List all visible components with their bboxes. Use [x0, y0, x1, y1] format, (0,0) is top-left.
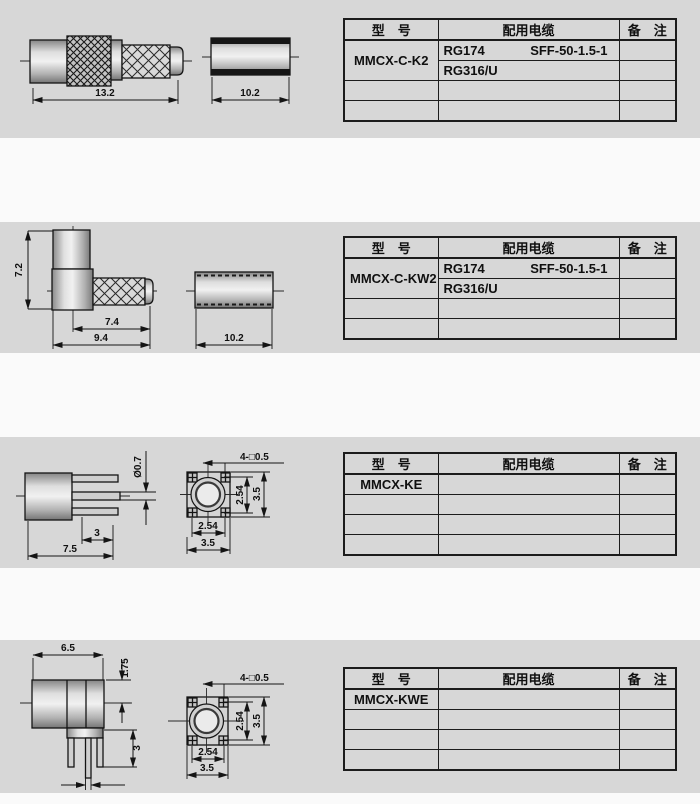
model-cell: MMCX-C-KW2	[344, 258, 438, 299]
empty-cell	[438, 710, 619, 730]
cable-cell: RG316/U	[438, 61, 619, 81]
empty-cell	[619, 495, 676, 515]
empty-cell	[344, 710, 438, 730]
dim-flange-width: 3.5	[200, 763, 214, 774]
drawing-mmcx-kwe: 6.5 1.75 3 4-□0.5 2.54 3.5	[0, 640, 340, 793]
empty-cell	[619, 689, 676, 710]
col-header-cable: 配用电缆	[438, 19, 619, 40]
dim-flange-height: 3.5	[252, 487, 263, 501]
empty-cell	[619, 299, 676, 319]
ferrule-side-view	[202, 38, 299, 75]
dim-body-length: 7.5	[63, 544, 77, 555]
col-header-model: 型 号	[344, 19, 438, 40]
pcb-connector-side-view	[16, 473, 130, 520]
dim-pin-pitch-horizontal: 2.54	[198, 747, 218, 758]
connector-side-view	[20, 36, 192, 86]
dim-flange-width: 3.5	[201, 538, 215, 549]
col-header-cable: 配用电缆	[438, 237, 619, 258]
empty-cell	[438, 515, 619, 535]
spec-table-mmcx-c-kw2: 型 号 配用电缆 备 注 MMCX-C-KW2 RG174 SFF-50-1.5…	[343, 236, 677, 340]
remark-cell	[619, 258, 676, 279]
model-cell: MMCX-C-K2	[344, 40, 438, 81]
empty-cell	[344, 495, 438, 515]
dim-pin-pitch-vertical: 2.54	[235, 711, 246, 731]
dim-flange-height: 3.5	[252, 714, 263, 728]
section-mmcx-kwe: 6.5 1.75 3 4-□0.5 2.54 3.5	[0, 640, 700, 793]
flange-front-view	[180, 464, 238, 526]
cable-name: RG174	[444, 261, 485, 276]
empty-cell	[438, 299, 619, 319]
cable-name: SFF-50-1.5-1	[530, 261, 607, 276]
cable-name: SFF-50-1.5-1	[530, 43, 607, 58]
drawing-mmcx-ke: Ø0.7 3 7.5 4-□0.5 2.54 3.5 2.54	[0, 437, 340, 568]
cable-name: RG174	[444, 43, 485, 58]
cable-cell: RG174 SFF-50-1.5-1	[438, 40, 619, 61]
empty-cell	[619, 515, 676, 535]
remark-cell	[619, 40, 676, 61]
empty-cell	[344, 730, 438, 750]
flange-front-view	[168, 688, 244, 753]
empty-cell	[344, 750, 438, 771]
empty-cell	[438, 750, 619, 771]
col-header-cable: 配用电缆	[438, 453, 619, 474]
ferrule-side-view	[186, 272, 284, 308]
dim-horizontal-length: 7.4	[105, 317, 119, 328]
col-header-model: 型 号	[344, 668, 438, 689]
empty-cell	[438, 474, 619, 495]
empty-cell	[438, 689, 619, 710]
empty-cell	[344, 101, 438, 122]
model-cell: MMCX-KE	[344, 474, 438, 495]
dim-ferrule-length: 10.2	[224, 333, 244, 344]
empty-cell	[438, 495, 619, 515]
spec-table-mmcx-kwe: 型 号 配用电缆 备 注 MMCX-KWE	[343, 667, 677, 771]
datasheet-page: { "colors": { "panel_bg": "#d7d7d7", "ga…	[0, 0, 700, 804]
col-header-remark: 备 注	[619, 19, 676, 40]
empty-cell	[619, 730, 676, 750]
spec-table-mmcx-c-k2: 型 号 配用电缆 备 注 MMCX-C-K2 RG174 SFF-50-1.5-…	[343, 18, 677, 122]
dim-ferrule-length: 10.2	[240, 88, 260, 99]
drawing-mmcx-c-kw2: 7.2 7.4 9.4 10.2	[0, 222, 340, 353]
empty-cell	[344, 299, 438, 319]
dim-total-length: 9.4	[94, 333, 108, 344]
col-header-cable: 配用电缆	[438, 668, 619, 689]
empty-cell	[619, 535, 676, 556]
cable-cell: RG174 SFF-50-1.5-1	[438, 258, 619, 279]
empty-cell	[619, 101, 676, 122]
dim-square-pins: 4-□0.5	[240, 452, 269, 463]
empty-cell	[344, 319, 438, 340]
empty-cell	[619, 81, 676, 101]
cable-cell: RG316/U	[438, 279, 619, 299]
col-header-model: 型 号	[344, 453, 438, 474]
col-header-model: 型 号	[344, 237, 438, 258]
empty-cell	[438, 81, 619, 101]
col-header-remark: 备 注	[619, 453, 676, 474]
right-angle-pcb-connector-view	[20, 680, 132, 778]
empty-cell	[344, 535, 438, 556]
dim-square-pins: 4-□0.5	[240, 673, 269, 684]
remark-cell	[619, 61, 676, 81]
right-angle-connector-view	[47, 226, 157, 332]
section-mmcx-c-k2: 13.2 10.2 型 号 配用电缆 备 注 MMCX-C-K2 RG174 S…	[0, 0, 700, 138]
col-header-remark: 备 注	[619, 668, 676, 689]
dim-pin-pitch-horizontal: 2.54	[198, 521, 218, 532]
empty-cell	[344, 515, 438, 535]
empty-cell	[438, 535, 619, 556]
dim-pin-diameter: Ø0.7	[133, 456, 144, 478]
empty-cell	[438, 730, 619, 750]
dim-pin-length: 3	[94, 528, 100, 539]
spec-table-mmcx-ke: 型 号 配用电缆 备 注 MMCX-KE	[343, 452, 677, 556]
dim-pin-length: 3	[132, 745, 143, 751]
dim-height: 7.2	[14, 263, 25, 277]
dim-body-length: 6.5	[61, 643, 75, 654]
empty-cell	[619, 474, 676, 495]
empty-cell	[619, 710, 676, 730]
dim-pin-pitch-vertical: 2.54	[235, 485, 246, 505]
model-cell: MMCX-KWE	[344, 689, 438, 710]
dim-total-length: 13.2	[95, 88, 115, 99]
empty-cell	[344, 81, 438, 101]
col-header-remark: 备 注	[619, 237, 676, 258]
section-mmcx-ke: Ø0.7 3 7.5 4-□0.5 2.54 3.5 2.54	[0, 437, 700, 568]
remark-cell	[619, 279, 676, 299]
empty-cell	[438, 319, 619, 340]
drawing-mmcx-c-k2: 13.2 10.2	[0, 0, 340, 138]
empty-cell	[619, 319, 676, 340]
empty-cell	[438, 101, 619, 122]
section-mmcx-c-kw2: 7.2 7.4 9.4 10.2 型 号 配用电缆 备 注 MMCX-C-KW2	[0, 222, 700, 353]
empty-cell	[619, 750, 676, 771]
dim-offset: 1.75	[120, 658, 131, 678]
